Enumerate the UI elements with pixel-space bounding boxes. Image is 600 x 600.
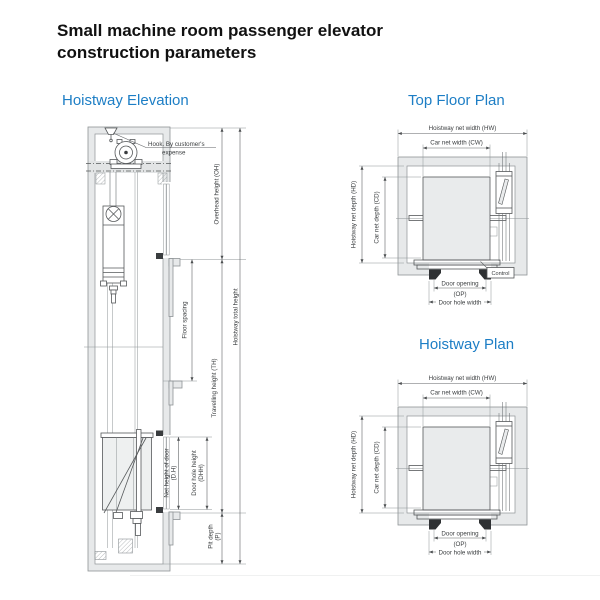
hook-label-line1: Hook. By customer's [148,141,205,148]
page-title: Small machine room passenger elevator co… [57,20,437,64]
tfp-door-opening-label-line1: Door opening [441,281,479,288]
net-door-height-label-line2: (D.H) [171,466,178,481]
hwp-hoistway-net-depth-label: Hoistway net depth (HD) [351,431,358,498]
pit-depth-label-line2: (P) [215,532,222,540]
hwp-hoistway-net-width-label: Hoistway net width (HW) [429,375,497,382]
hwp-car-net-depth-label: Car net depth (CD) [374,441,381,493]
heading-top-floor-plan: Top Floor Plan [408,92,505,109]
hoistway-total-height-label: Hoistway total height [233,288,240,345]
tfp-hoistway-net-width-label: Hoistway net width (HW) [429,125,497,132]
heading-hoistway-plan: Hoistway Plan [419,336,514,353]
hook-label-line2: expense [162,150,186,157]
tfp-hoistway-net-depth-label: Hoistway net depth (HD) [351,181,358,248]
tfp-car-net-width-label: Car net width (CW) [430,140,483,147]
heading-hoistway-elevation: Hoistway Elevation [62,92,189,109]
travelling-height-label: Travelling height (TH) [211,358,218,417]
page: Small machine room passenger elevator co… [0,0,600,600]
hwp-car-net-width-label: Car net width (CW) [430,390,483,397]
pit-depth-label-line1: Pit depth [208,524,215,549]
floor-spacing-label: Floor spacing [182,301,189,339]
hwp-door-opening-label-line1: Door opening [441,531,479,538]
overhead-height-label: Overhead height (OH) [214,164,221,225]
door-hole-height-label-line1: Door hole height [191,450,198,496]
hoistway-plan-diagram: Hoistway net width (HW) Car net width (C… [340,372,540,562]
tfp-car-net-depth-label: Car net depth (CD) [374,191,381,243]
tfp-door-opening-label-line2: (OP) [453,291,466,298]
door-hole-height-label-line2: (DHH) [198,464,205,482]
hwp-door-opening-label-line2: (OP) [453,541,466,548]
hwp-door-hole-width-label: Door hole width [439,550,483,557]
net-door-height-label-line1: Net height of door [164,448,171,497]
control-label: Control [491,271,509,277]
tfp-door-hole-width-label: Door hole width [439,300,483,307]
top-floor-plan-diagram: Control Hoistway net width (HW) Car net … [340,122,540,312]
hoistway-elevation-diagram: Hook. By customer's expense Overhead hei… [75,120,265,585]
